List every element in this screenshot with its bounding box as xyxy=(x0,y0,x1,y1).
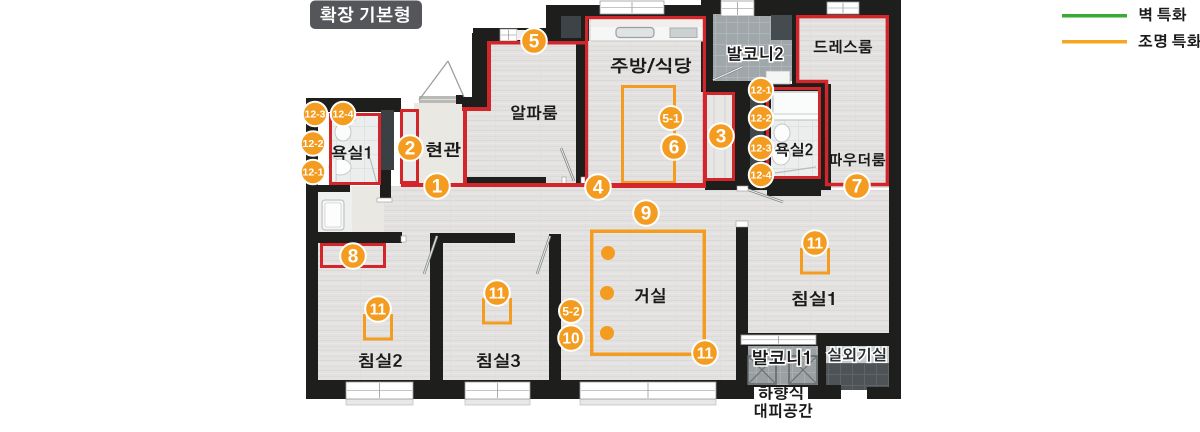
svg-text:12-4: 12-4 xyxy=(750,170,771,182)
svg-text:12-2: 12-2 xyxy=(750,113,771,125)
svg-text:10: 10 xyxy=(562,331,579,348)
svg-text:2: 2 xyxy=(405,139,416,160)
svg-text:12-2: 12-2 xyxy=(302,138,323,150)
svg-text:8: 8 xyxy=(348,247,359,268)
svg-text:12-4: 12-4 xyxy=(332,109,353,121)
svg-text:4: 4 xyxy=(593,178,604,199)
svg-text:1: 1 xyxy=(432,177,443,198)
svg-text:5-1: 5-1 xyxy=(662,111,680,125)
svg-text:11: 11 xyxy=(489,286,506,303)
svg-text:12-3: 12-3 xyxy=(750,143,771,155)
svg-text:5: 5 xyxy=(529,32,540,53)
svg-text:5-2: 5-2 xyxy=(562,304,580,318)
svg-text:12-1: 12-1 xyxy=(302,167,323,179)
svg-text:12-1: 12-1 xyxy=(750,85,771,97)
svg-text:11: 11 xyxy=(370,302,387,319)
svg-text:11: 11 xyxy=(697,346,714,363)
svg-text:3: 3 xyxy=(716,127,727,148)
svg-text:7: 7 xyxy=(852,177,863,198)
svg-text:12-3: 12-3 xyxy=(304,109,325,121)
svg-text:11: 11 xyxy=(807,236,824,253)
svg-text:9: 9 xyxy=(641,204,652,225)
svg-text:6: 6 xyxy=(669,138,680,159)
